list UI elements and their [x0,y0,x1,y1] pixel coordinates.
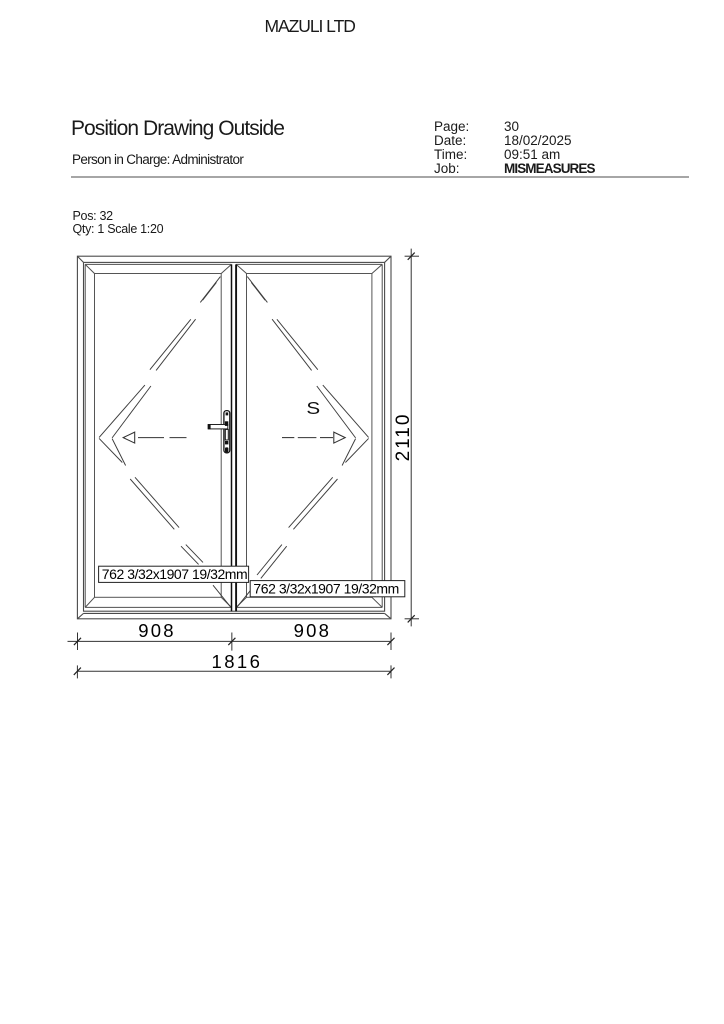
svg-text:908: 908 [294,620,331,641]
svg-text:S: S [306,399,320,418]
svg-text:908: 908 [138,620,175,641]
svg-text:1816: 1816 [212,651,263,672]
svg-text:762 3/32x1907 19/32mm: 762 3/32x1907 19/32mm [102,566,247,582]
svg-text:762 3/32x1907 19/32mm: 762 3/32x1907 19/32mm [253,581,398,597]
svg-text:2110: 2110 [393,413,414,462]
